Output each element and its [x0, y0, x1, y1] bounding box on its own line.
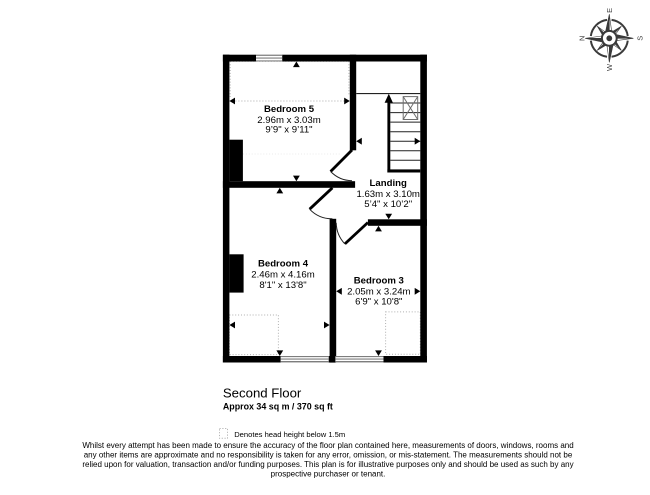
svg-text:Bedroom 3: Bedroom 3 [354, 275, 404, 286]
svg-text:prospective purchaser or tenan: prospective purchaser or tenant. [271, 470, 386, 479]
svg-text:6'9" x 10'8": 6'9" x 10'8" [355, 297, 402, 308]
svg-text:W: W [605, 63, 614, 71]
svg-text:S: S [636, 36, 645, 41]
svg-text:8'1" x 13'8": 8'1" x 13'8" [259, 280, 306, 291]
svg-text:Second Floor: Second Floor [223, 385, 302, 400]
svg-text:E: E [605, 8, 614, 13]
svg-text:Approx 34 sq m / 370 sq ft: Approx 34 sq m / 370 sq ft [223, 402, 333, 412]
svg-text:Bedroom 4: Bedroom 4 [258, 259, 309, 270]
svg-text:2.46m x 4.16m: 2.46m x 4.16m [251, 270, 314, 281]
svg-text:N: N [578, 36, 587, 41]
svg-text:any other items are approximat: any other items are approximate and no r… [84, 450, 573, 459]
svg-text:9’9" x 9’11": 9’9" x 9’11" [265, 124, 312, 135]
svg-text:relied upon for valuation, tra: relied upon for valuation, transaction a… [82, 460, 573, 469]
svg-text:Bedroom 5: Bedroom 5 [264, 104, 315, 115]
svg-text:2.05m x 3.24m: 2.05m x 3.24m [347, 286, 410, 297]
svg-text:Whilst every attempt has been: Whilst every attempt has been made to en… [82, 441, 573, 450]
svg-text:Landing: Landing [370, 178, 407, 189]
svg-text:Denotes head height below 1.5m: Denotes head height below 1.5m [234, 430, 345, 439]
svg-text:5’4" x 10’2": 5’4" x 10’2" [364, 199, 412, 210]
